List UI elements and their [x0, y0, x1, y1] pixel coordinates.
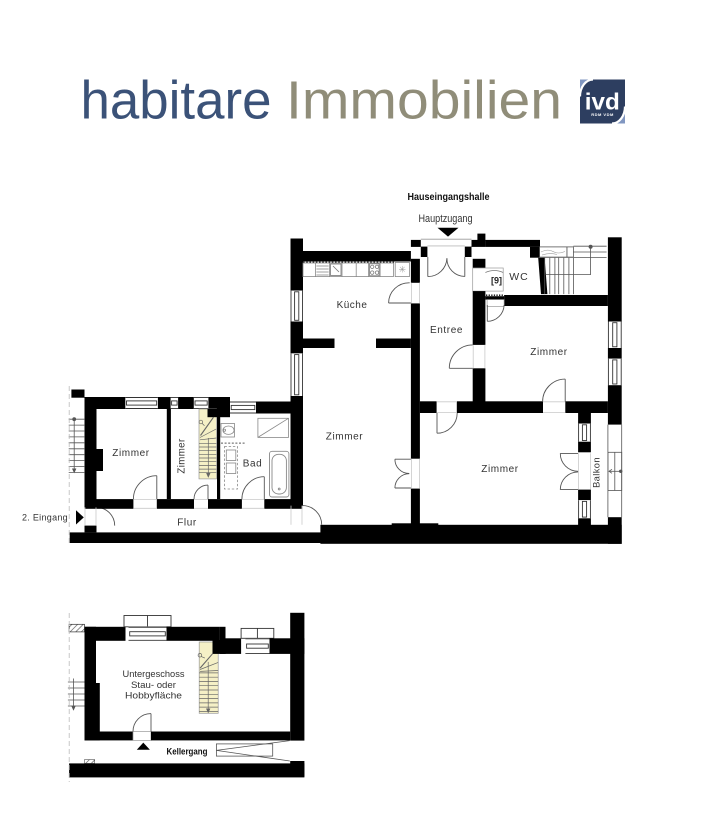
svg-text:Hobbyfläche: Hobbyfläche: [125, 691, 182, 702]
svg-text:Entree: Entree: [430, 325, 463, 336]
svg-text:[9]: [9]: [491, 276, 502, 286]
svg-text:2. Eingang: 2. Eingang: [22, 513, 68, 523]
svg-text:RDM VDM: RDM VDM: [591, 112, 614, 117]
svg-text:Zimmer: Zimmer: [326, 432, 364, 443]
svg-text:Hauptzugang: Hauptzugang: [419, 213, 473, 225]
svg-text:Immobilien: Immobilien: [286, 71, 562, 131]
svg-text:Kellergang: Kellergang: [167, 747, 208, 758]
svg-text:Flur: Flur: [177, 517, 197, 528]
svg-text:habitare: habitare: [81, 71, 272, 131]
svg-text:Zimmer: Zimmer: [112, 448, 150, 459]
svg-text:Stau- oder: Stau- oder: [131, 680, 176, 691]
svg-text:Bad: Bad: [243, 458, 263, 469]
svg-text:Zimmer: Zimmer: [177, 438, 188, 474]
svg-text:Balkon: Balkon: [592, 457, 602, 488]
svg-text:Zimmer: Zimmer: [481, 464, 519, 475]
svg-text:Zimmer: Zimmer: [530, 347, 568, 358]
svg-text:ivd: ivd: [585, 89, 620, 115]
svg-text:WC: WC: [509, 271, 529, 283]
svg-text:Küche: Küche: [337, 300, 368, 311]
svg-text:Hauseingangshalle: Hauseingangshalle: [408, 191, 490, 203]
svg-text:Untergeschoss: Untergeschoss: [123, 669, 185, 680]
svg-text:✳: ✳: [399, 265, 407, 275]
